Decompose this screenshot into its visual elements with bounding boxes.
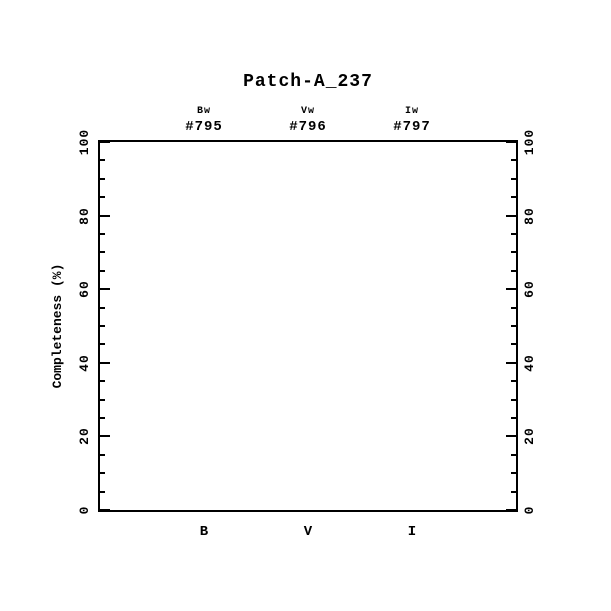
x-category-label: V — [278, 524, 338, 540]
y-tick-label-right: 80 — [523, 194, 537, 238]
y-major-tick — [506, 215, 516, 217]
y-minor-tick — [100, 178, 105, 180]
y-minor-tick — [511, 325, 516, 327]
y-axis-label: Completeness (%) — [50, 241, 66, 411]
y-minor-tick — [511, 399, 516, 401]
y-tick-label-right: 60 — [523, 267, 537, 311]
y-minor-tick — [100, 307, 105, 309]
y-tick-label-left: 40 — [78, 341, 92, 385]
y-minor-tick — [100, 380, 105, 382]
y-major-tick — [506, 435, 516, 437]
y-tick-label-left: 20 — [78, 414, 92, 458]
y-major-tick — [506, 362, 516, 364]
y-major-tick — [506, 141, 516, 143]
y-tick-label-right: 0 — [523, 488, 537, 532]
completeness-figure: Patch-A_237 Bw#795Vw#796Iw#797 Completen… — [0, 0, 611, 611]
object-count-label: #796 — [263, 119, 353, 135]
object-count-label: #795 — [159, 119, 249, 135]
y-tick-label-right: 40 — [523, 341, 537, 385]
y-major-tick — [506, 288, 516, 290]
y-minor-tick — [511, 307, 516, 309]
filter-name-label: Bw — [164, 106, 244, 117]
y-major-tick — [100, 288, 110, 290]
x-category-label: I — [382, 524, 442, 540]
y-tick-label-left: 80 — [78, 194, 92, 238]
y-minor-tick — [100, 233, 105, 235]
y-tick-label-left: 100 — [78, 120, 92, 164]
x-category-label: B — [174, 524, 234, 540]
y-tick-label-right: 100 — [523, 120, 537, 164]
y-major-tick — [100, 509, 110, 511]
plot-area — [98, 140, 518, 512]
y-minor-tick — [511, 196, 516, 198]
y-minor-tick — [511, 380, 516, 382]
y-tick-label-left: 60 — [78, 267, 92, 311]
y-minor-tick — [511, 491, 516, 493]
y-major-tick — [100, 141, 110, 143]
y-minor-tick — [100, 343, 105, 345]
y-minor-tick — [100, 454, 105, 456]
y-minor-tick — [511, 159, 516, 161]
y-major-tick — [100, 435, 110, 437]
y-minor-tick — [511, 178, 516, 180]
y-minor-tick — [100, 417, 105, 419]
y-minor-tick — [100, 491, 105, 493]
y-major-tick — [506, 509, 516, 511]
y-minor-tick — [511, 417, 516, 419]
y-minor-tick — [511, 233, 516, 235]
y-minor-tick — [100, 159, 105, 161]
chart-title: Patch-A_237 — [98, 72, 518, 92]
y-major-tick — [100, 362, 110, 364]
y-minor-tick — [100, 270, 105, 272]
y-minor-tick — [511, 343, 516, 345]
filter-name-label: Vw — [268, 106, 348, 117]
y-tick-label-right: 20 — [523, 414, 537, 458]
y-minor-tick — [100, 325, 105, 327]
y-minor-tick — [511, 251, 516, 253]
y-minor-tick — [511, 454, 516, 456]
filter-name-label: Iw — [372, 106, 452, 117]
y-minor-tick — [511, 270, 516, 272]
y-minor-tick — [511, 472, 516, 474]
y-major-tick — [100, 215, 110, 217]
y-minor-tick — [100, 399, 105, 401]
y-minor-tick — [100, 472, 105, 474]
y-tick-label-left: 0 — [78, 488, 92, 532]
y-minor-tick — [100, 251, 105, 253]
y-minor-tick — [100, 196, 105, 198]
object-count-label: #797 — [367, 119, 457, 135]
